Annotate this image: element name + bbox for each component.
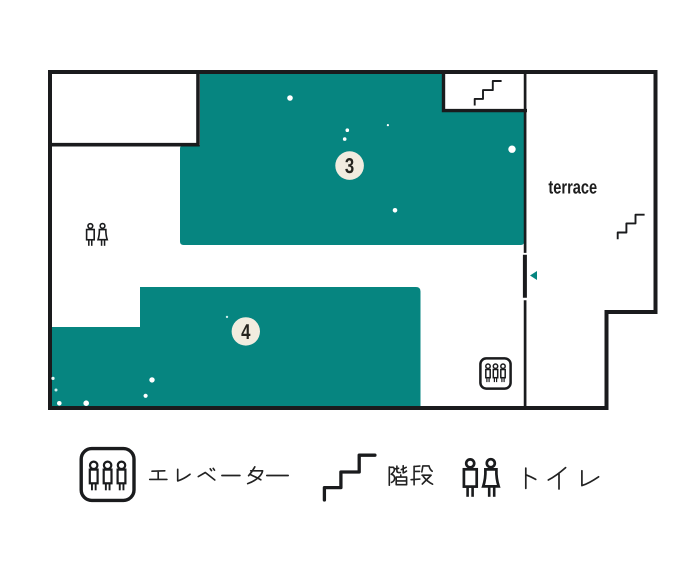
svg-text:3: 3 [345,154,354,178]
svg-text:terrace: terrace [548,177,597,198]
svg-text:4: 4 [241,320,250,344]
